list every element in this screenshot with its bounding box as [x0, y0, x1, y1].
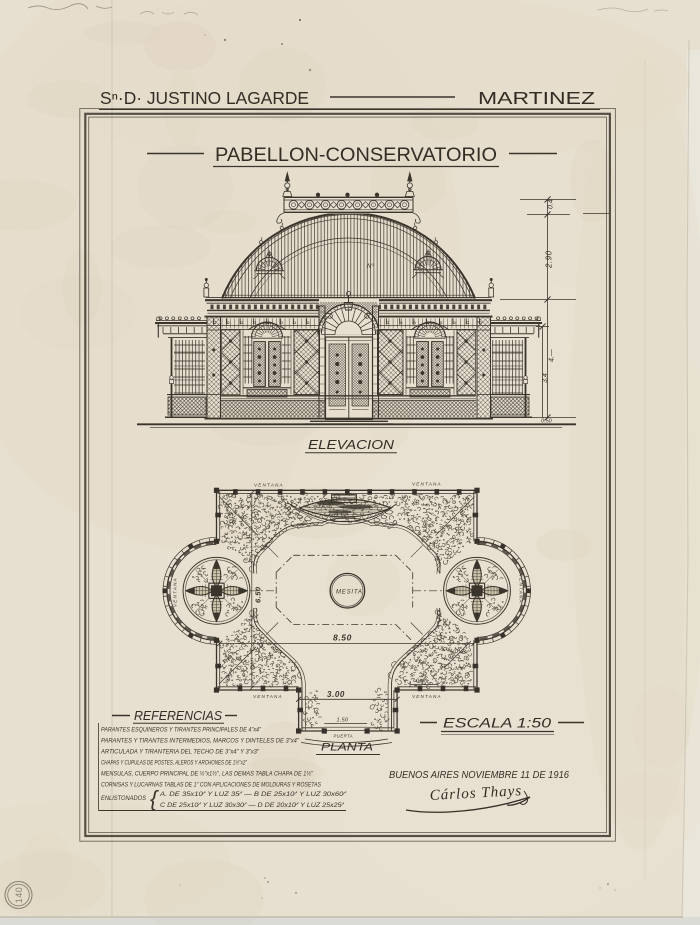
svg-text:3,4: 3,4 [542, 373, 549, 383]
svg-text:CHAPAS Y CUPULAS DE POSTES, AL: CHAPAS Y CUPULAS DE POSTES, ALEROS Y ARC… [101, 760, 248, 767]
svg-text:0.50: 0.50 [541, 419, 553, 425]
svg-text:3.00: 3.00 [327, 690, 345, 699]
svg-text:VENTANA: VENTANA [254, 483, 284, 488]
svg-text:REFERENCIAS: REFERENCIAS [134, 709, 223, 723]
svg-text:ESCALA 1:50: ESCALA 1:50 [443, 716, 552, 731]
svg-text:4.—: 4.— [549, 348, 556, 362]
svg-text:ARTICULADA Y TIRANTERIA DEL TE: ARTICULADA Y TIRANTERIA DEL TECHO DE 3"x… [100, 749, 260, 756]
svg-text:VENTANA: VENTANA [412, 482, 442, 487]
svg-text:A. DE 35x10⁄′ Y LUZ 35⁄′ — B: A. DE 35x10⁄′ Y LUZ 35⁄′ — B DE 25x10⁄′ … [159, 791, 347, 798]
svg-text:8.50: 8.50 [333, 633, 352, 643]
svg-text:MARTINEZ: MARTINEZ [478, 88, 595, 108]
svg-text:CORNISAS Y LUCARNAS TABLAS DE: CORNISAS Y LUCARNAS TABLAS DE 1" CON APL… [101, 782, 322, 789]
svg-text:PUERTA: PUERTA [334, 734, 354, 739]
svg-text:C DE 25x10⁄′ Y LUZ 30x30⁄′ —: C DE 25x10⁄′ Y LUZ 30x30⁄′ — D DE 20x10⁄… [160, 802, 345, 809]
svg-text:ELEVACION: ELEVACION [308, 438, 395, 452]
svg-text:BUENOS AIRES NOVIEMBRE 11 DE 1: BUENOS AIRES NOVIEMBRE 11 DE 1916 [389, 770, 569, 781]
svg-text:PLANTA: PLANTA [321, 742, 373, 754]
svg-text:VENTANA: VENTANA [412, 694, 442, 699]
svg-text:MESITA: MESITA [336, 590, 363, 596]
svg-text:Sⁿ·D· JUSTINO LAGARDE: Sⁿ·D· JUSTINO LAGARDE [100, 88, 309, 108]
svg-text:0.4: 0.4 [548, 199, 555, 209]
svg-text:PARANTES Y TIRANTES INTERMEDIO: PARANTES Y TIRANTES INTERMEDIOS, MARCOS … [101, 738, 300, 745]
svg-text:PARANTES ESQUINEROS Y TIRANTES: PARANTES ESQUINEROS Y TIRANTES PRINCIPAL… [101, 727, 262, 734]
svg-text:2.90: 2.90 [545, 250, 554, 269]
svg-text:6.50: 6.50 [254, 586, 263, 603]
svg-text:MENSULAS, CUERPO PRINCIPAL DE: MENSULAS, CUERPO PRINCIPAL DE ½"x1½", LA… [101, 771, 314, 778]
svg-text:VENTANA: VENTANA [253, 694, 283, 699]
svg-text:140: 140 [14, 887, 24, 904]
svg-text:ENLISTONADOS: ENLISTONADOS [101, 795, 147, 802]
svg-text:VENTANA: VENTANA [173, 577, 178, 607]
svg-text:1.50: 1.50 [337, 718, 350, 724]
svg-text:PABELLON-CONSERVATORIO: PABELLON-CONSERVATORIO [215, 144, 497, 166]
svg-text:Nº: Nº [367, 263, 374, 270]
svg-text:VENTANA: VENTANA [519, 574, 524, 604]
